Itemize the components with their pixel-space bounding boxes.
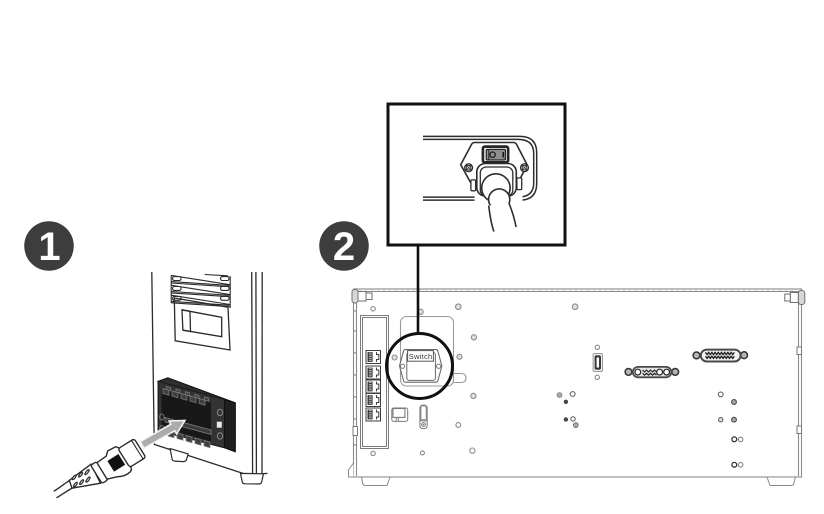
svg-text:Switch: Switch bbox=[409, 352, 433, 361]
svg-text:1: 1 bbox=[38, 225, 60, 269]
svg-text:2: 2 bbox=[333, 225, 355, 269]
